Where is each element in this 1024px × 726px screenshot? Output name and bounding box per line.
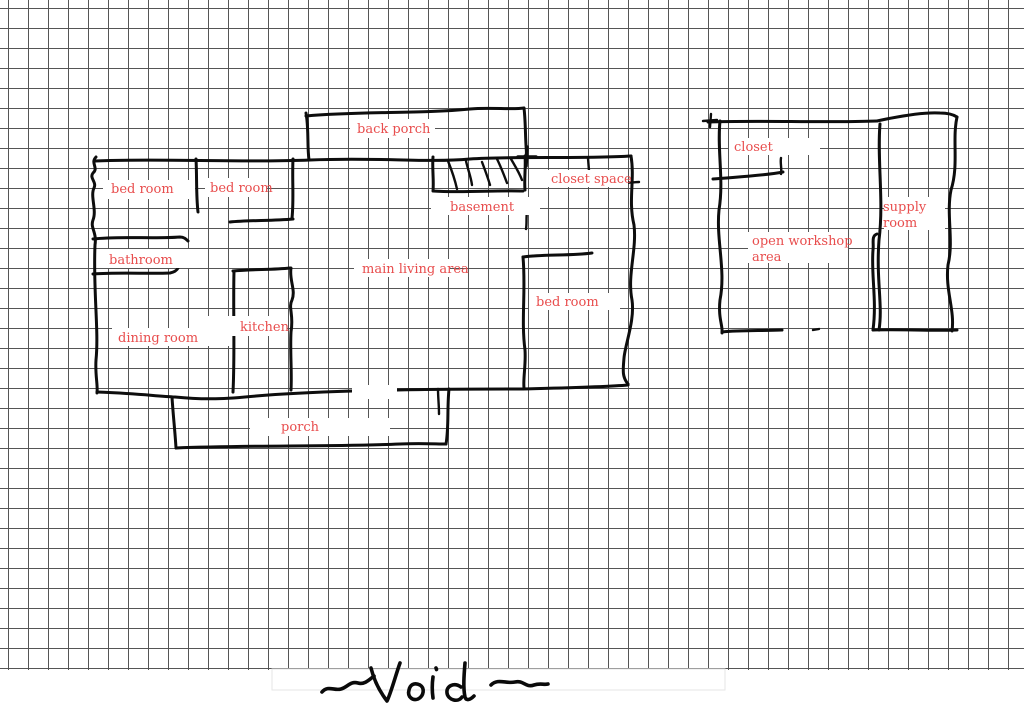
workshop-bottom-wall [722,330,782,332]
label-main-living-area: main living area [362,262,469,277]
label-bed-room-1: bed room [111,182,174,197]
bedroom2-living-divider [292,159,293,218]
label-open-workshop-line2: area [752,250,782,265]
footer-band [272,669,725,690]
porch-door-stub [438,389,439,414]
label-closet: closet [734,140,774,155]
label-dining-room: dining room [118,331,198,346]
workshop-bottom-tick [813,329,819,330]
label-bg-porch [250,418,390,436]
floor-plan-page: back porch bed room bed room closet spac… [0,0,1024,726]
label-porch: porch [281,420,320,435]
floor-plan-canvas[interactable]: back porch bed room bed room closet spac… [0,0,1024,726]
label-open-workshop-line1: open workshop [752,234,853,249]
bedroom3-left-wall [523,257,525,388]
label-bed-room-3: bed room [536,295,599,310]
workshop-top-wall [708,121,877,122]
label-basement: basement [450,200,515,215]
label-supply-room-line2: room [883,216,917,231]
label-kitchen: kitchen [240,320,290,335]
label-bed-room-2: bed room [210,181,273,196]
label-bathroom: bathroom [109,253,173,268]
label-supply-room-line1: supply [883,200,927,215]
supply-room-bottom-wall [873,330,957,331]
workshop-closet-door-tick [781,158,782,174]
label-closet-space: closet space [551,172,632,187]
label-back-porch: back porch [357,122,431,137]
porch-doorway-gap [352,385,397,399]
closet-space-door-tick [588,158,589,171]
bedroom1-bedroom2-divider [196,159,198,212]
